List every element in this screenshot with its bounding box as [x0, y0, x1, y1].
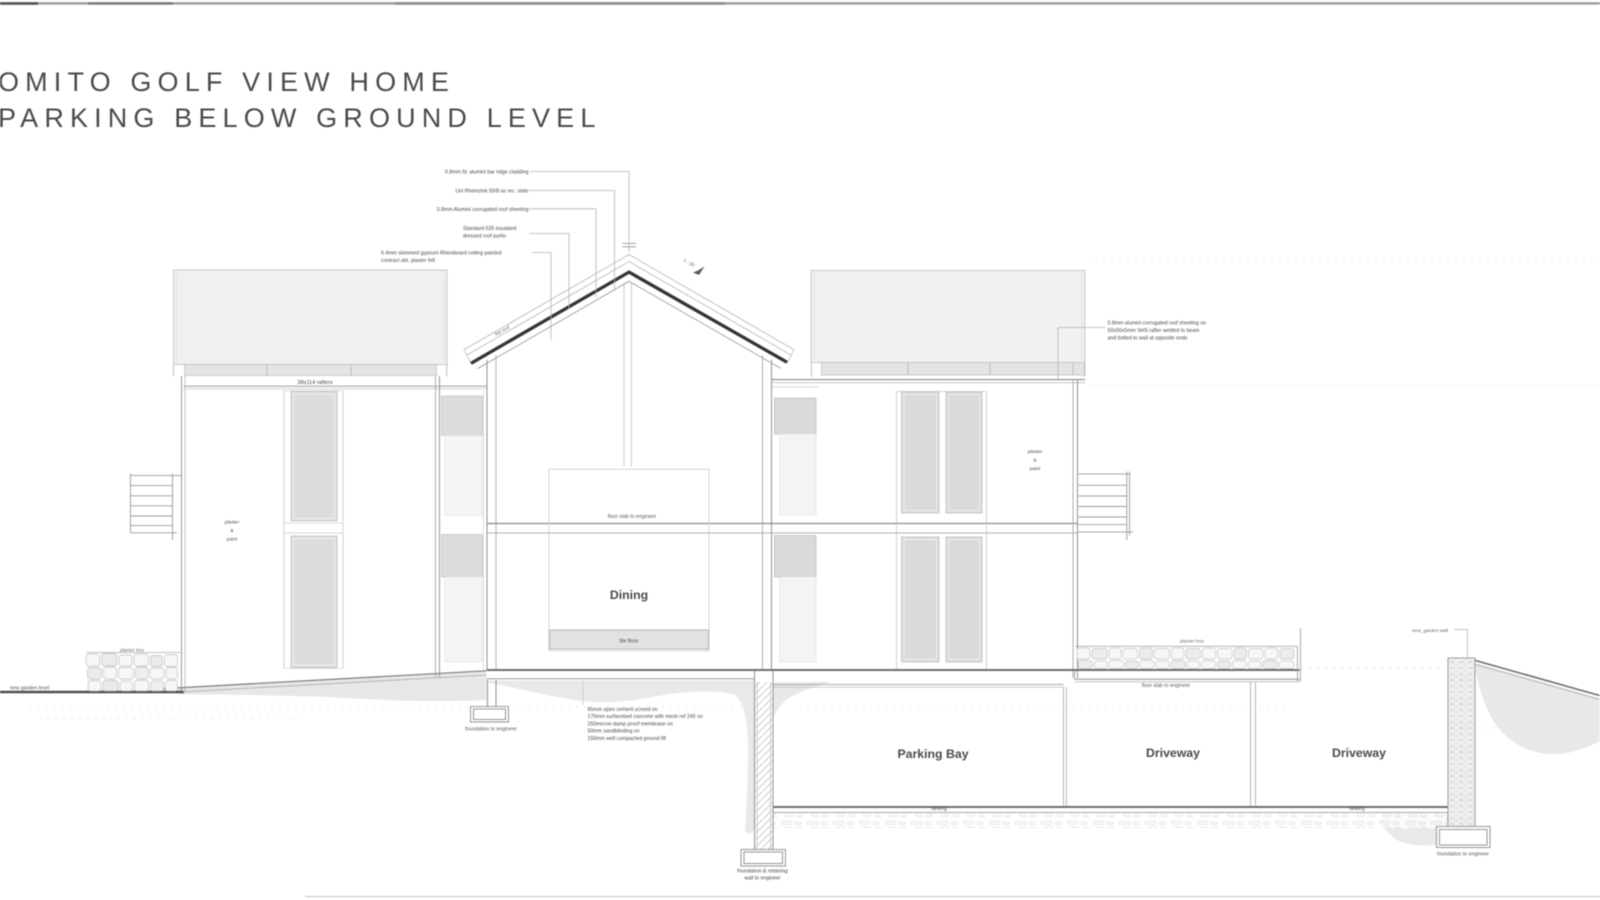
svg-text:and bolted to wall at opposite: and bolted to wall at opposite ends: [1108, 336, 1188, 342]
svg-text:planter box: planter box: [1180, 639, 1204, 645]
svg-text:paint: paint: [227, 537, 238, 543]
svg-text:tile floor: tile floor: [620, 639, 639, 645]
svg-text:50x50x5mm SHS rafter welded to: 50x50x5mm SHS rafter welded to beam: [1108, 328, 1200, 334]
svg-text:0.8mm alumini corrugated roof: 0.8mm alumini corrugated roof sheeting o…: [1108, 321, 1207, 327]
svg-text:new garden level: new garden level: [10, 686, 49, 692]
svg-text:Uni Rheinzink 50/8 as rec. sla: Uni Rheinzink 50/8 as rec. slate: [456, 189, 529, 195]
svg-text:floor slab to engineer: floor slab to engineer: [608, 514, 657, 520]
svg-text:plaster: plaster: [225, 520, 240, 526]
svg-text:foundation to engineer: foundation to engineer: [1437, 852, 1489, 858]
svg-text:wall to engineer: wall to engineer: [744, 876, 781, 882]
svg-text:PARKING BELOW GROUND LEVEL: PARKING BELOW GROUND LEVEL: [0, 103, 602, 133]
svg-text:paint: paint: [1030, 466, 1041, 472]
svg-text:170mm surfacebed concrete with: 170mm surfacebed concrete with mesh ref …: [588, 714, 703, 720]
svg-text:150mm well compacted ground fi: 150mm well compacted ground fill: [588, 736, 666, 742]
svg-text:foundation & retaining: foundation & retaining: [737, 869, 788, 875]
svg-text:0.8mm fd. alumini bar ridge cl: 0.8mm fd. alumini bar ridge cladding: [445, 170, 529, 176]
svg-text:Parking Bay: Parking Bay: [897, 747, 968, 761]
svg-text:85mm open cement screed on: 85mm open cement screed on: [588, 707, 658, 713]
svg-text:Dining: Dining: [610, 588, 648, 602]
svg-text:tanking: tanking: [1349, 806, 1365, 812]
svg-text:Standard 635 insulated: Standard 635 insulated: [463, 226, 516, 232]
svg-text:dressed roof purlin: dressed roof purlin: [463, 234, 506, 240]
svg-text:250micron damp proof membrane: 250micron damp proof membrane on: [588, 721, 673, 727]
svg-text:foundation to engineer: foundation to engineer: [465, 727, 517, 733]
svg-text:OMITO GOLF VIEW HOME: OMITO GOLF VIEW HOME: [0, 67, 455, 97]
svg-text:new_garden wall: new_garden wall: [1412, 628, 1448, 634]
svg-text:50mm sandblinding on: 50mm sandblinding on: [588, 729, 640, 735]
svg-text:Driveway: Driveway: [1146, 746, 1200, 760]
svg-text:contract abt. plaster felt: contract abt. plaster felt: [381, 258, 435, 264]
svg-text:floor slab to engineer: floor slab to engineer: [1142, 683, 1191, 689]
svg-text:tanking: tanking: [931, 806, 947, 812]
svg-text:plaster: plaster: [1028, 449, 1043, 455]
svg-text:Driveway: Driveway: [1332, 746, 1386, 760]
svg-text:0.8mm Alumini corrugated roof: 0.8mm Alumini corrugated roof sheeting: [437, 207, 529, 213]
svg-text:6.4mm skimmed gypsum Rhinoboar: 6.4mm skimmed gypsum Rhinoboard ceiling …: [381, 251, 502, 257]
svg-text:38x114 rafters: 38x114 rafters: [297, 380, 333, 386]
